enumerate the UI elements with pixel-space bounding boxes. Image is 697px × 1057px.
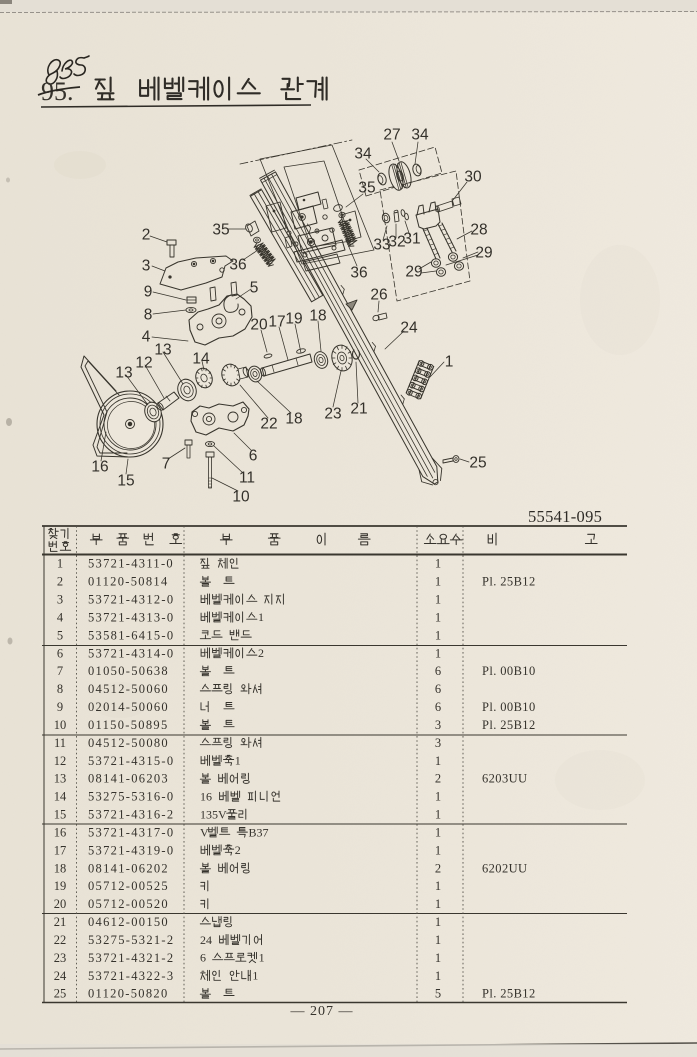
svg-text:24: 24: [200, 933, 212, 947]
svg-text:B37: B37: [249, 825, 269, 839]
svg-text:4: 4: [142, 329, 151, 346]
svg-text:25: 25: [469, 455, 486, 472]
svg-text:53721-4319-0: 53721-4319-0: [88, 843, 174, 857]
svg-text:53721-4311-0: 53721-4311-0: [88, 557, 174, 571]
svg-text:36: 36: [350, 265, 367, 282]
svg-text:15: 15: [117, 473, 134, 490]
svg-text:11: 11: [54, 736, 66, 750]
svg-text:27: 27: [383, 127, 400, 144]
svg-text:08141-06202: 08141-06202: [88, 861, 169, 875]
svg-text:15: 15: [54, 808, 67, 822]
svg-text:10: 10: [54, 718, 67, 732]
svg-text:19: 19: [54, 879, 67, 893]
svg-text:30: 30: [464, 169, 482, 186]
svg-text:53721-4316-2: 53721-4316-2: [88, 808, 174, 822]
svg-text:1: 1: [435, 628, 441, 642]
svg-text:18: 18: [285, 411, 302, 428]
svg-text:1: 1: [435, 610, 441, 624]
svg-text:11: 11: [239, 470, 255, 487]
svg-text:20: 20: [54, 897, 67, 911]
svg-text:2: 2: [435, 861, 441, 875]
svg-text:Pl. 25B12: Pl. 25B12: [482, 575, 536, 589]
svg-text:16: 16: [54, 826, 67, 840]
svg-text:6: 6: [249, 448, 258, 465]
svg-text:04612-00150: 04612-00150: [88, 915, 169, 929]
svg-text:1: 1: [435, 915, 441, 929]
svg-text:6: 6: [57, 646, 63, 660]
svg-text:29: 29: [405, 264, 422, 281]
svg-text:8: 8: [57, 682, 63, 696]
svg-text:12: 12: [54, 754, 67, 768]
svg-text:5: 5: [250, 280, 259, 297]
svg-text:21: 21: [350, 401, 367, 418]
svg-text:24: 24: [54, 969, 67, 983]
svg-text:1: 1: [435, 897, 441, 911]
svg-text:1: 1: [252, 969, 258, 983]
svg-text:8: 8: [144, 307, 153, 324]
svg-text:1: 1: [435, 790, 441, 804]
svg-text:1: 1: [435, 646, 441, 660]
svg-text:18: 18: [54, 861, 67, 875]
svg-text:3: 3: [142, 258, 151, 275]
svg-text:1: 1: [435, 593, 441, 607]
svg-text:Pl. 00B10: Pl. 00B10: [482, 700, 536, 714]
svg-text:01050-50638: 01050-50638: [88, 664, 169, 678]
svg-text:2: 2: [235, 843, 241, 857]
svg-text:1: 1: [235, 754, 241, 768]
svg-text:1: 1: [435, 557, 441, 571]
svg-text:23: 23: [54, 951, 67, 965]
svg-text:1: 1: [435, 933, 441, 947]
svg-text:36: 36: [229, 257, 246, 274]
svg-text:6: 6: [435, 700, 441, 714]
svg-text:14: 14: [54, 790, 67, 804]
svg-text:7: 7: [57, 664, 63, 678]
svg-text:1: 1: [258, 610, 264, 624]
svg-text:1: 1: [445, 354, 454, 371]
svg-text:17: 17: [54, 843, 67, 857]
svg-text:21: 21: [54, 915, 67, 929]
svg-text:3: 3: [435, 718, 441, 732]
svg-text:53721-4315-0: 53721-4315-0: [88, 754, 174, 768]
svg-text:3: 3: [57, 593, 63, 607]
svg-text:— 207 —: — 207 —: [290, 1004, 354, 1019]
svg-text:23: 23: [324, 406, 341, 423]
svg-text:35: 35: [358, 180, 375, 197]
svg-text:1: 1: [435, 969, 441, 983]
svg-text:1: 1: [259, 951, 265, 965]
svg-text:53721-4322-3: 53721-4322-3: [88, 969, 174, 983]
svg-text:2: 2: [57, 575, 63, 589]
svg-text:Pl. 25B12: Pl. 25B12: [482, 718, 536, 732]
svg-text:26: 26: [370, 287, 387, 304]
svg-text:01120-50814: 01120-50814: [88, 575, 169, 589]
svg-text:20: 20: [250, 317, 268, 334]
svg-text:1: 1: [435, 951, 441, 965]
svg-text:24: 24: [400, 320, 418, 337]
svg-text:53581-6415-0: 53581-6415-0: [88, 628, 174, 642]
svg-text:2: 2: [435, 772, 441, 786]
svg-text:1: 1: [435, 754, 441, 768]
svg-text:6: 6: [435, 664, 441, 678]
svg-text:53721-4314-0: 53721-4314-0: [88, 646, 174, 660]
svg-text:1: 1: [435, 808, 441, 822]
svg-text:13: 13: [154, 342, 171, 359]
svg-text:4: 4: [57, 610, 64, 624]
svg-text:18: 18: [309, 308, 326, 325]
svg-text:7: 7: [162, 456, 171, 473]
svg-text:13: 13: [115, 365, 132, 382]
svg-text:9: 9: [57, 700, 63, 714]
svg-text:22: 22: [54, 933, 67, 947]
svg-text:16: 16: [200, 789, 212, 803]
svg-text:1: 1: [435, 826, 441, 840]
svg-text:6203UU: 6203UU: [482, 772, 527, 786]
svg-text:01150-50895: 01150-50895: [88, 718, 169, 732]
svg-text:14: 14: [192, 351, 210, 368]
svg-text:1: 1: [57, 557, 63, 571]
svg-text:10: 10: [232, 489, 250, 506]
svg-text:02014-50060: 02014-50060: [88, 700, 169, 714]
svg-text:19: 19: [285, 311, 302, 328]
svg-text:6202UU: 6202UU: [482, 861, 527, 875]
svg-text:25: 25: [54, 987, 67, 1001]
svg-text:6: 6: [200, 951, 206, 965]
svg-text:1: 1: [435, 575, 441, 589]
svg-text:53275-5316-0: 53275-5316-0: [88, 790, 174, 804]
svg-text:9: 9: [144, 284, 153, 301]
svg-text:55541-095: 55541-095: [528, 507, 602, 526]
svg-text:05712-00520: 05712-00520: [88, 897, 169, 911]
svg-text:22: 22: [260, 416, 277, 433]
svg-text:28: 28: [470, 222, 487, 239]
svg-text:01120-50820: 01120-50820: [88, 987, 169, 1001]
svg-text:53721-4313-0: 53721-4313-0: [88, 610, 174, 624]
svg-text:12: 12: [135, 355, 152, 372]
svg-text:29: 29: [475, 245, 492, 262]
svg-text:35: 35: [212, 222, 229, 239]
svg-text:6: 6: [435, 682, 441, 696]
svg-text:135V: 135V: [200, 807, 227, 821]
svg-text:34: 34: [354, 146, 372, 163]
svg-text:04512-50080: 04512-50080: [88, 736, 169, 750]
svg-text:13: 13: [54, 772, 67, 786]
svg-text:1: 1: [435, 843, 441, 857]
svg-text:08141-06203: 08141-06203: [88, 772, 169, 786]
svg-text:34: 34: [411, 127, 429, 144]
svg-text:5: 5: [435, 987, 441, 1001]
svg-text:53721-4317-0: 53721-4317-0: [88, 826, 174, 840]
svg-text:53721-4312-0: 53721-4312-0: [88, 593, 174, 607]
svg-text:16: 16: [91, 459, 108, 476]
svg-text:17: 17: [268, 314, 285, 331]
svg-text:53275-5321-2: 53275-5321-2: [88, 933, 174, 947]
svg-text:5: 5: [57, 628, 63, 642]
svg-text:05712-00525: 05712-00525: [88, 879, 169, 893]
svg-text:2: 2: [142, 227, 151, 244]
svg-text:04512-50060: 04512-50060: [88, 682, 169, 696]
svg-text:53721-4321-2: 53721-4321-2: [88, 951, 174, 965]
svg-text:31: 31: [403, 231, 420, 248]
svg-text:3: 3: [435, 736, 441, 750]
svg-text:1: 1: [435, 879, 441, 893]
svg-text:2: 2: [258, 646, 264, 660]
svg-text:Pl. 25B12: Pl. 25B12: [482, 987, 536, 1001]
svg-text:Pl. 00B10: Pl. 00B10: [482, 664, 536, 678]
svg-text:V: V: [200, 825, 209, 839]
